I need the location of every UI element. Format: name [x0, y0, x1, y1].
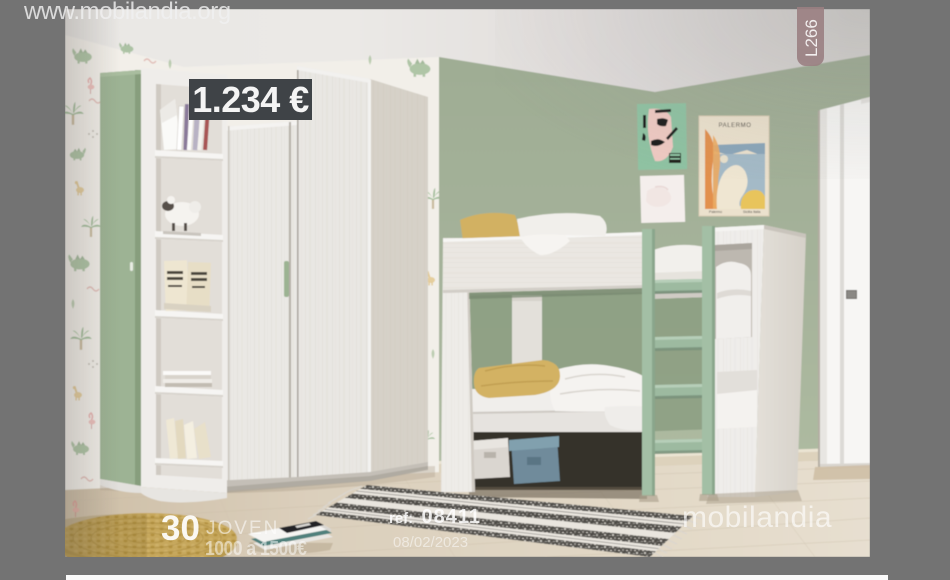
svg-text:Sicilia Italia: Sicilia Italia	[743, 210, 761, 214]
svg-text:Palermo: Palermo	[709, 210, 722, 214]
